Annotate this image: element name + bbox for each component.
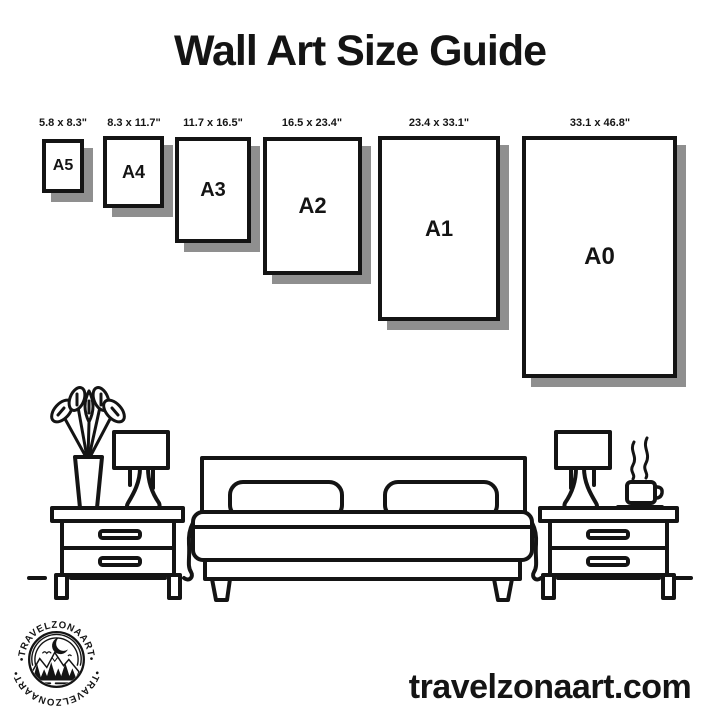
frame-a1-letter: A1 (425, 216, 453, 242)
frame-a4-letter: A4 (122, 162, 145, 183)
website-url: travelzonaart.com (390, 668, 710, 707)
size-label-a3: 11.7 x 16.5" (168, 117, 258, 129)
frame-a3-letter: A3 (200, 179, 226, 202)
frame-a1: A1 (378, 136, 500, 321)
frame-a4: A4 (103, 136, 164, 208)
table-lamp-right-icon (556, 432, 610, 508)
frame-a2: A2 (263, 137, 362, 275)
size-label-a1: 23.4 x 33.1" (384, 117, 494, 129)
size-label-a5: 5.8 x 8.3" (23, 117, 103, 129)
coffee-cup-icon (618, 438, 662, 507)
frame-a2-letter: A2 (298, 193, 326, 219)
frame-a5-letter: A5 (53, 157, 73, 175)
page-title: Wall Art Size Guide (0, 27, 720, 76)
table-lamp-left-icon (114, 432, 168, 508)
size-label-a0: 33.1 x 46.8" (545, 117, 655, 129)
frame-a3: A3 (175, 137, 251, 243)
nightstand-right-icon (540, 508, 677, 598)
size-label-a2: 16.5 x 23.4" (262, 117, 362, 129)
bed-icon (184, 458, 541, 600)
nightstand-left-icon (52, 508, 183, 598)
bedroom-illustration (0, 385, 720, 620)
frame-a5: A5 (42, 139, 84, 193)
size-label-a4: 8.3 x 11.7" (94, 117, 174, 129)
frame-a0: A0 (522, 136, 677, 378)
frame-a0-letter: A0 (584, 243, 615, 271)
brand-badge: •TRAVELZONAART• •TRAVELZONAART• (8, 611, 105, 708)
steam-icon (632, 438, 648, 479)
